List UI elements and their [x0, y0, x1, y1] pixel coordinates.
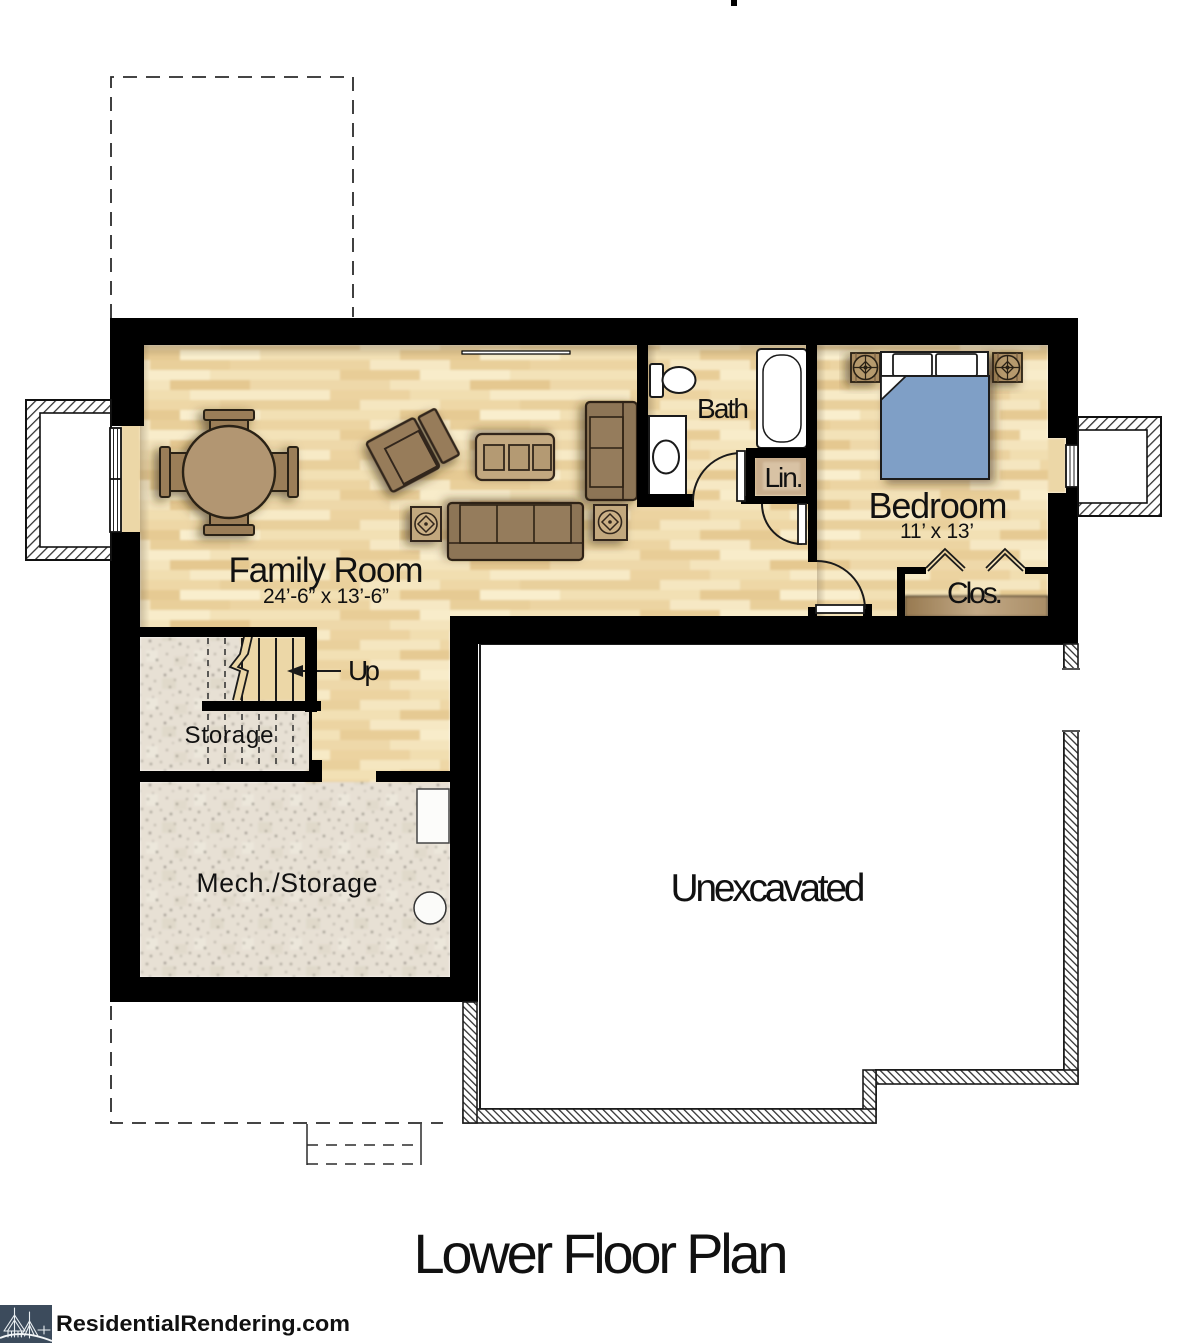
svg-text:Storage: Storage [185, 722, 274, 749]
svg-text:Bath: Bath [697, 393, 749, 424]
svg-text:24’-6” x 13’-6”: 24’-6” x 13’-6” [263, 585, 389, 608]
svg-text:ResidentialRendering.com: ResidentialRendering.com [56, 1311, 350, 1336]
svg-text:Unexcavated: Unexcavated [671, 867, 866, 910]
svg-text:Mech./Storage: Mech./Storage [197, 868, 378, 898]
svg-text:Lower Floor Plan: Lower Floor Plan [414, 1222, 789, 1285]
svg-text:Up: Up [348, 655, 380, 686]
svg-text:Lin.: Lin. [765, 462, 804, 493]
svg-text:11’ x 13’: 11’ x 13’ [900, 520, 974, 543]
svg-text:Clos.: Clos. [947, 577, 1003, 610]
